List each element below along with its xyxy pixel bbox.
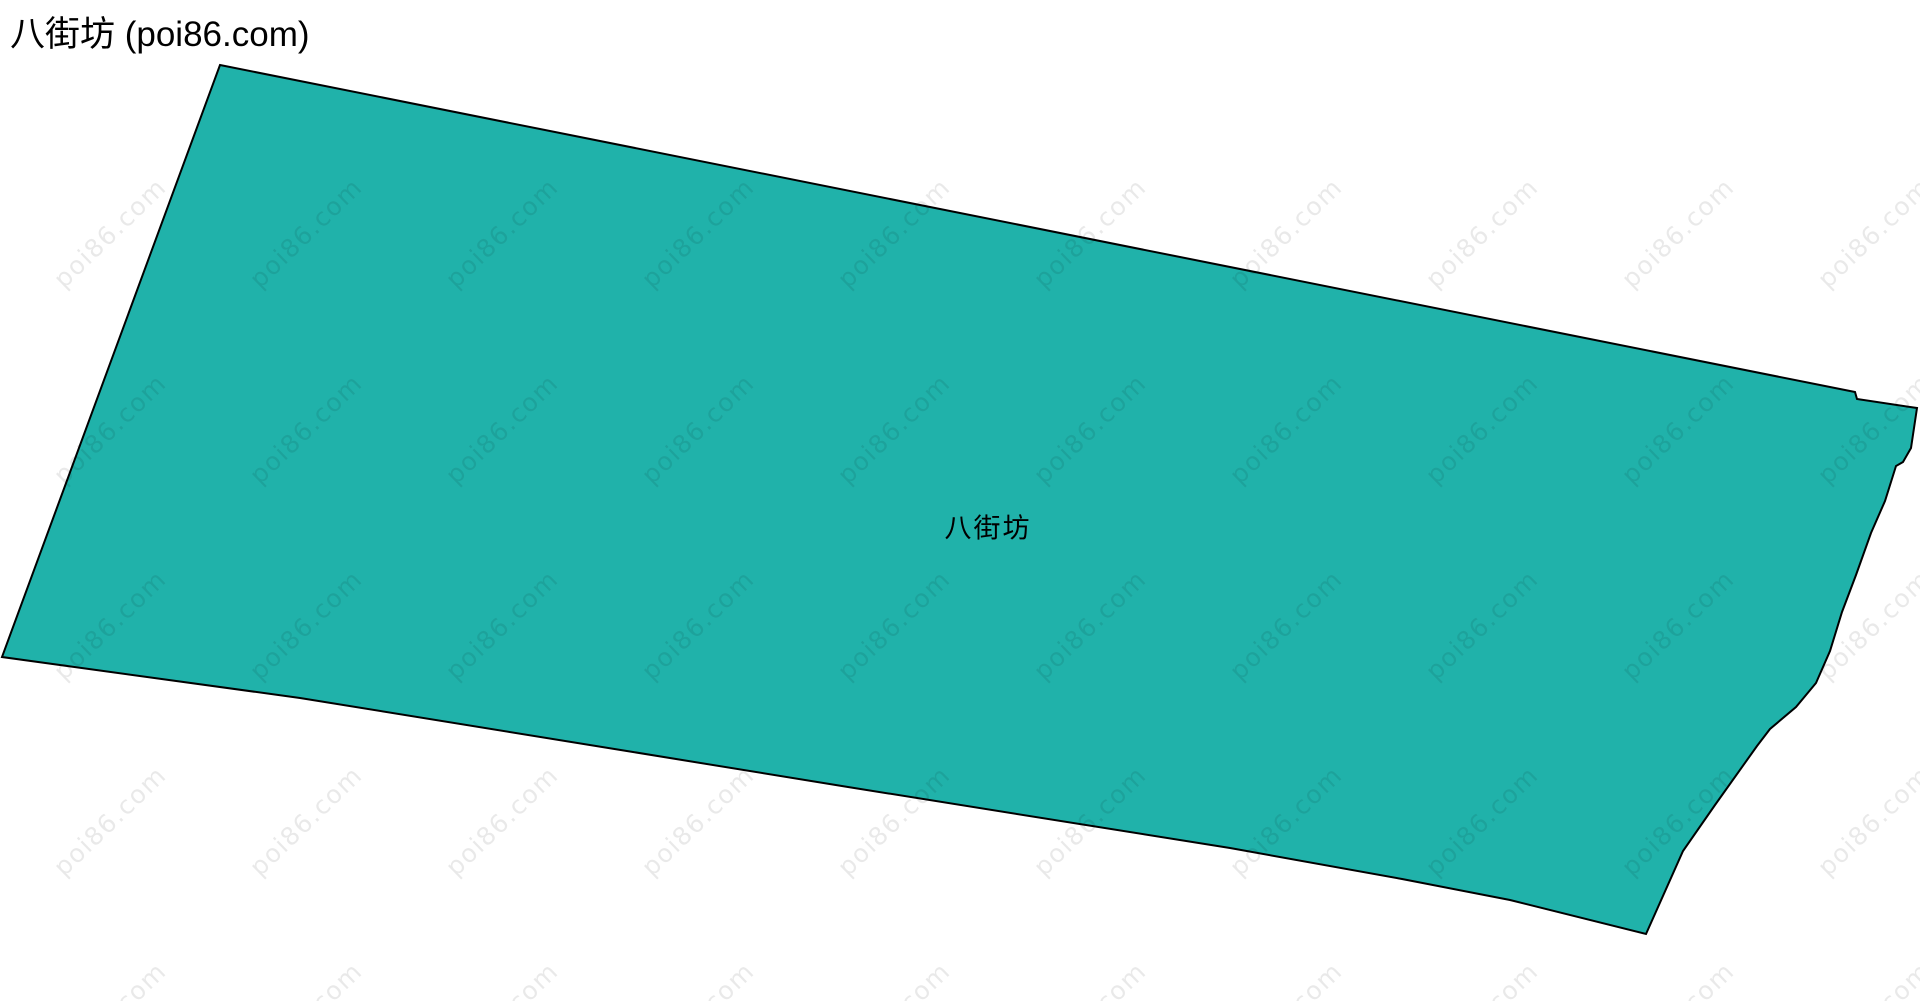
region-shape-svg [0,0,1920,1001]
region-label: 八街坊 [945,507,1032,546]
map-canvas: poi86.compoi86.compoi86.compoi86.compoi8… [0,0,1920,1001]
region-polygon [2,65,1917,934]
page-title: 八街坊 (poi86.com) [10,6,310,57]
